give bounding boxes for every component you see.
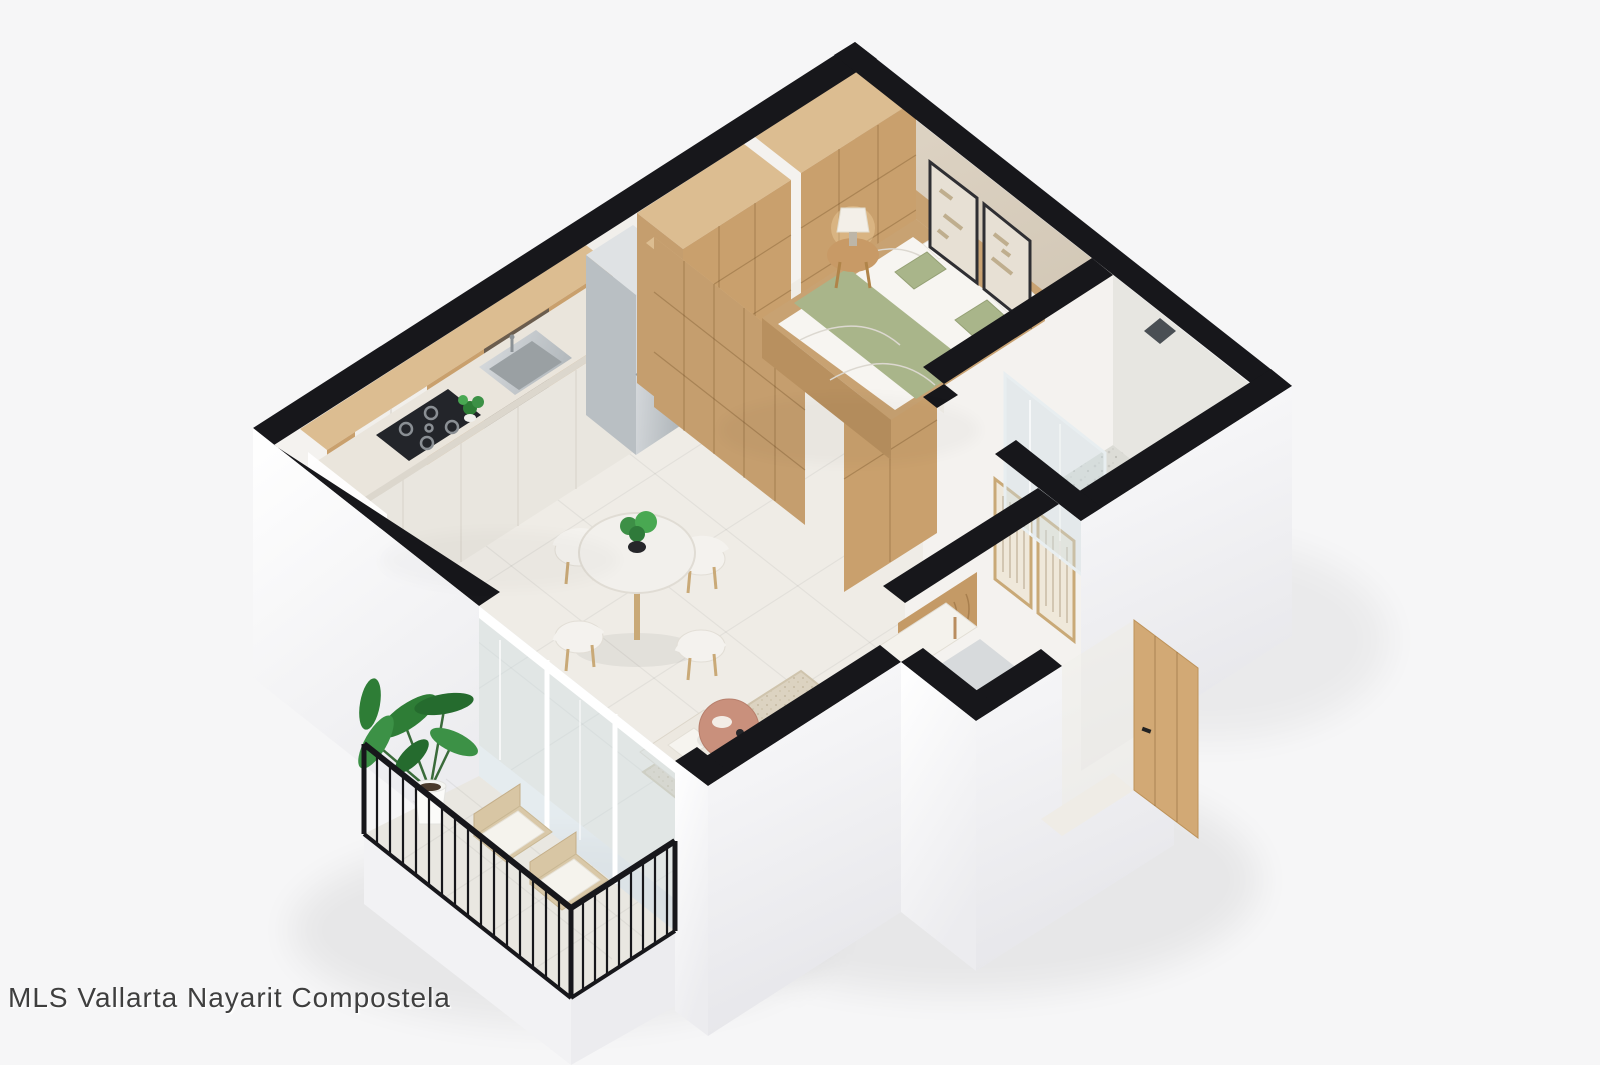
floor-plan-render [0,0,1600,1065]
watermark-text: MLS Vallarta Nayarit Compostela [8,982,608,1014]
floor-plan-page: MLS Vallarta Nayarit Compostela [0,0,1600,1065]
table-lamp [837,208,869,232]
